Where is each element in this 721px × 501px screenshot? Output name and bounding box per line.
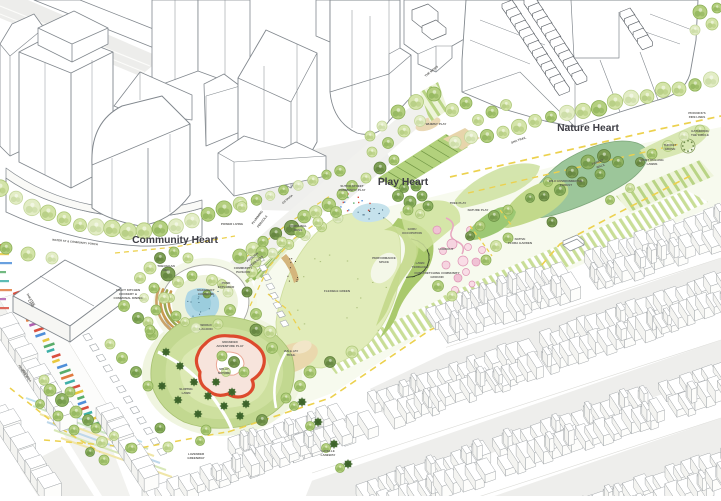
svg-text:TRAIL: TRAIL	[287, 353, 296, 357]
svg-text:HILL: HILL	[163, 268, 170, 272]
svg-text:PAVILION: PAVILION	[236, 270, 250, 274]
svg-text:SPACE: SPACE	[379, 260, 389, 264]
svg-text:THE CIRCLE: THE CIRCLE	[691, 133, 709, 137]
svg-text:FLEXIBLE GREEN: FLEXIBLE GREEN	[324, 289, 350, 293]
svg-text:COMMUNAL DINING: COMMUNAL DINING	[113, 296, 143, 300]
svg-text:TERRACES: TERRACES	[412, 265, 429, 269]
svg-text:GREENWAY: GREENWAY	[187, 456, 204, 460]
svg-text:ADVENTURE PLAY: ADVENTURE PLAY	[216, 344, 243, 348]
svg-text:COMMONS: COMMONS	[198, 292, 214, 296]
svg-text:TREE PLAY: TREE PLAY	[450, 201, 467, 205]
svg-text:GROVE: GROVE	[665, 147, 676, 151]
svg-text:FLORA GARDEN: FLORA GARDEN	[508, 241, 532, 245]
svg-text:LANEWAY: LANEWAY	[321, 453, 336, 457]
svg-text:LAGOON: LAGOON	[199, 327, 212, 331]
svg-text:FIRE LINES: FIRE LINES	[689, 115, 706, 119]
svg-text:GROUND: GROUND	[430, 275, 444, 279]
svg-text:POWER LIVING: POWER LIVING	[221, 222, 244, 226]
svg-text:MESS: MESS	[294, 228, 303, 232]
svg-text:NATURE PLAY: NATURE PLAY	[468, 208, 489, 212]
svg-text:Community Heart: Community Heart	[132, 235, 218, 246]
svg-text:WHIMSY PLAY: WHIMSY PLAY	[426, 122, 447, 126]
svg-text:OCCUPATION: OCCUPATION	[402, 231, 422, 235]
svg-text:FOREST: FOREST	[560, 183, 572, 187]
svg-text:NATURE: NATURE	[218, 371, 230, 375]
svg-text:LAWN: LAWN	[182, 391, 191, 395]
svg-text:Play Heart: Play Heart	[378, 177, 429, 188]
svg-text:LAWNS: LAWNS	[647, 162, 658, 166]
svg-text:Nature Heart: Nature Heart	[557, 123, 619, 134]
svg-text:COMMUNITY PLAY: COMMUNITY PLAY	[338, 188, 365, 192]
svg-text:EXPLORER: EXPLORER	[218, 285, 235, 289]
svg-text:LOOKOUT: LOOKOUT	[439, 247, 454, 251]
